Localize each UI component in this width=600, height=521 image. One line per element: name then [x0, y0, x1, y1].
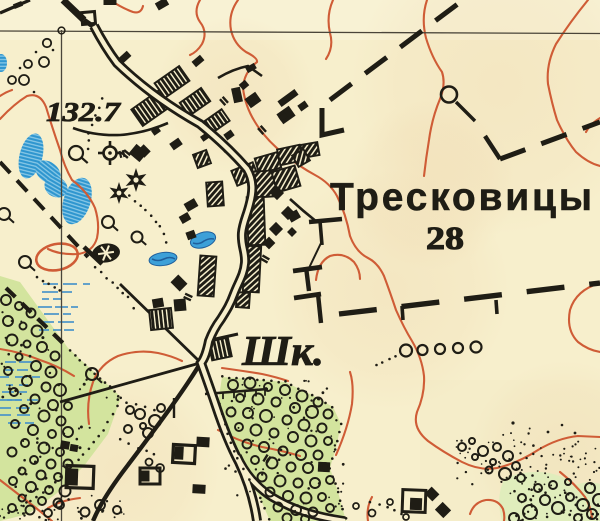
svg-text:132.7: 132.7 [46, 97, 122, 127]
svg-text:Тресковицы: Тресковицы [330, 176, 592, 219]
svg-text:28: 28 [426, 221, 464, 257]
svg-text:Шк.: Шк. [241, 329, 324, 375]
